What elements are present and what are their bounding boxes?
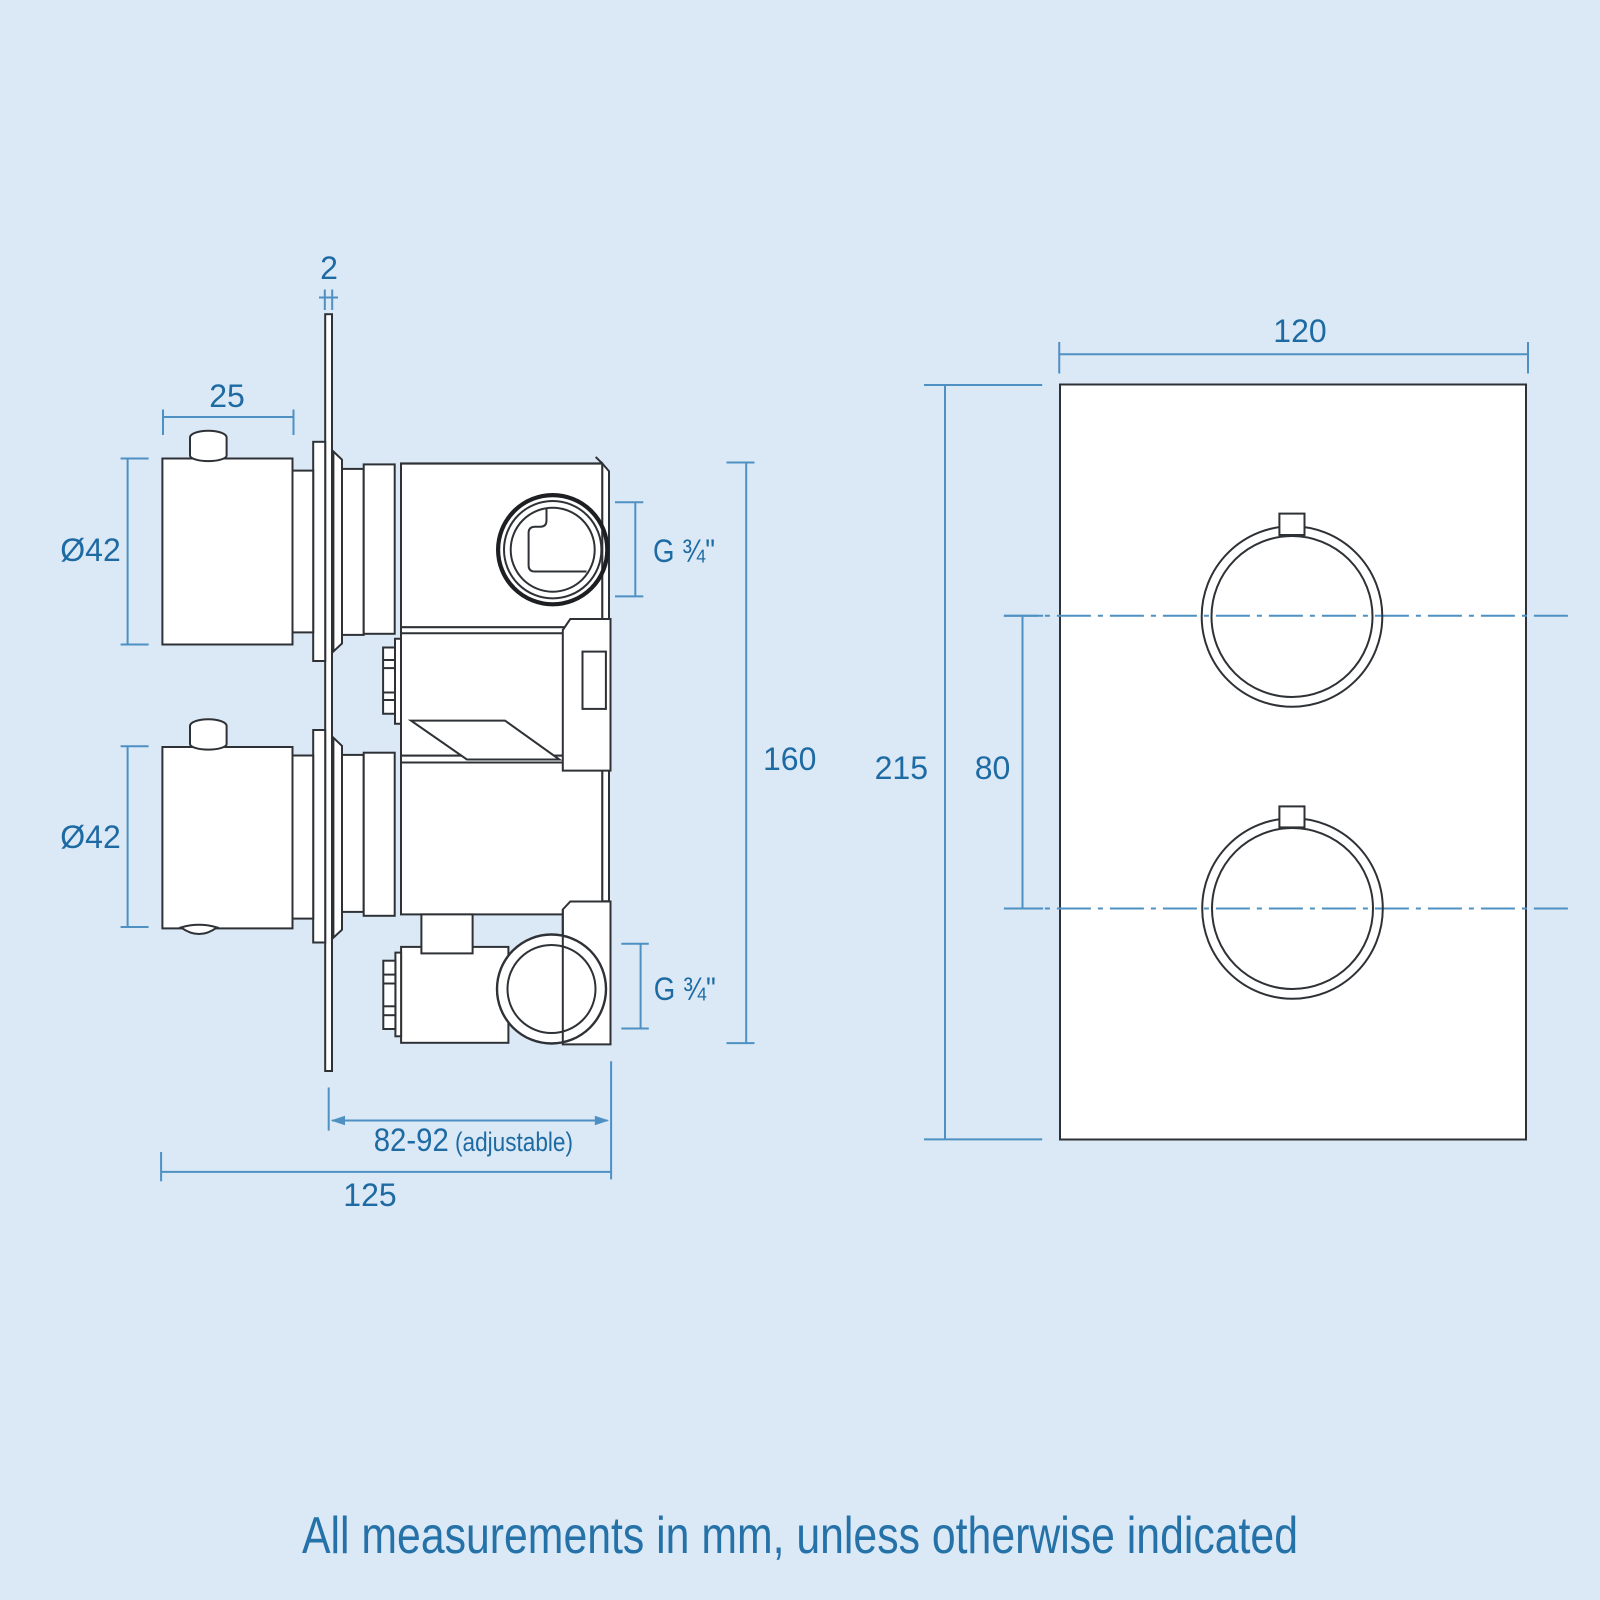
svg-text:Ø42: Ø42 xyxy=(60,819,120,855)
svg-text:125: 125 xyxy=(343,1177,396,1213)
svg-text:215: 215 xyxy=(875,750,928,786)
svg-text:(adjustable): (adjustable) xyxy=(455,1127,573,1157)
svg-text:160: 160 xyxy=(763,741,816,777)
svg-text:80: 80 xyxy=(975,750,1011,786)
svg-text:All measurements in mm, unless: All measurements in mm, unless otherwise… xyxy=(302,1507,1298,1565)
svg-text:2: 2 xyxy=(320,250,338,286)
svg-text:120: 120 xyxy=(1273,313,1326,349)
svg-text:Ø42: Ø42 xyxy=(60,532,120,568)
svg-text:G ¾": G ¾" xyxy=(654,971,716,1007)
svg-text:25: 25 xyxy=(209,378,245,414)
svg-text:G ¾": G ¾" xyxy=(653,533,715,569)
svg-text:82-92: 82-92 xyxy=(374,1122,449,1158)
